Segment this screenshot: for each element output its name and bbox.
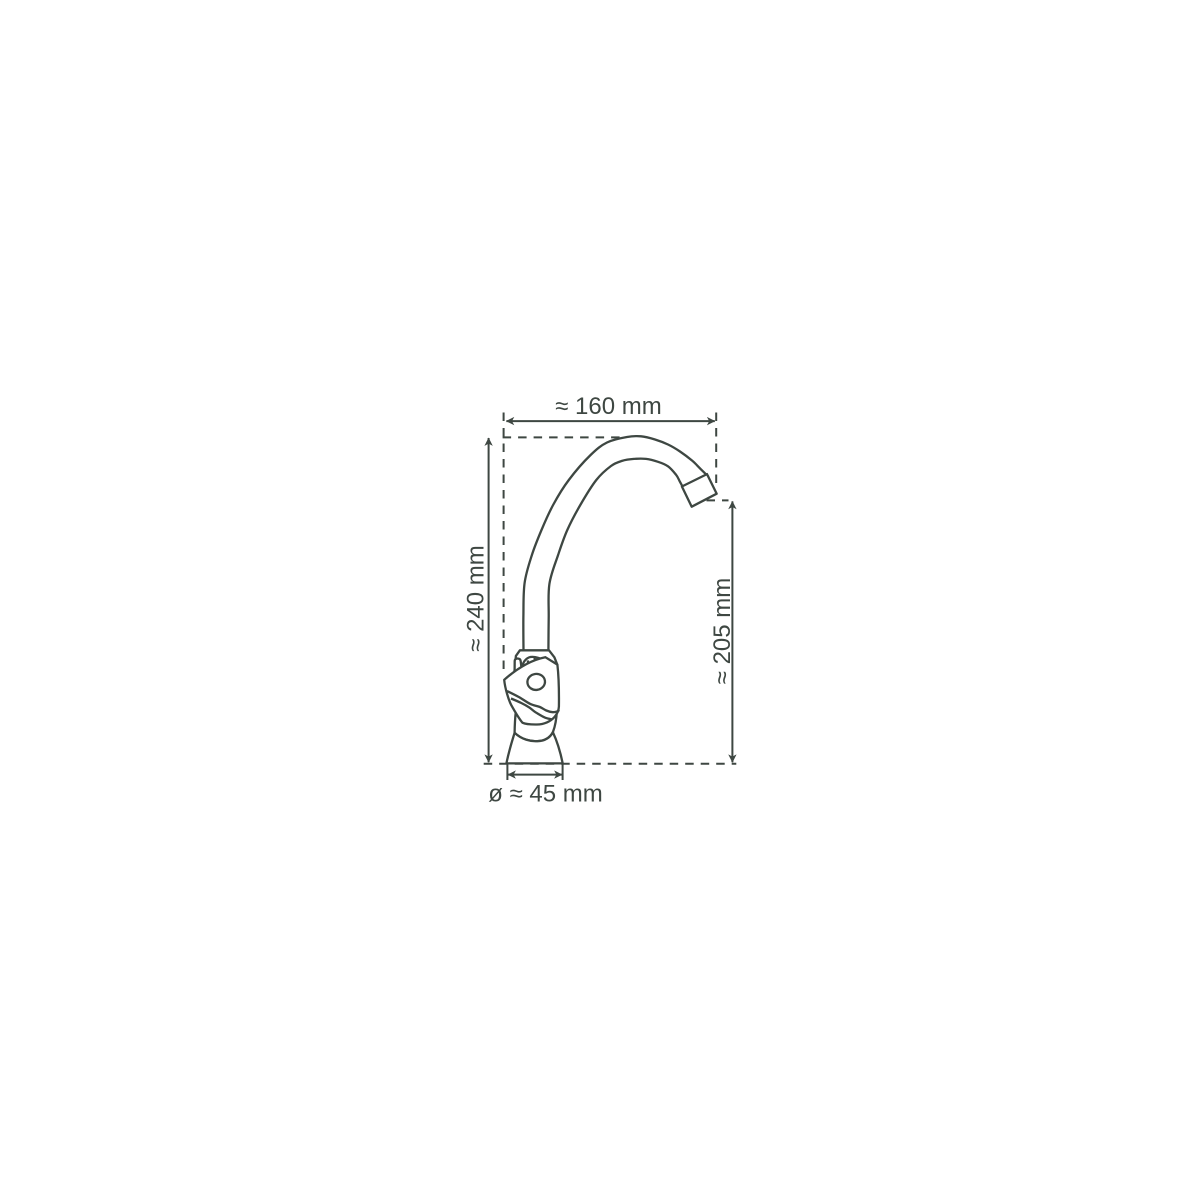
svg-text:≈ 160 mm: ≈ 160 mm: [555, 393, 662, 420]
svg-text:ø ≈ 45 mm: ø ≈ 45 mm: [488, 781, 603, 808]
svg-text:≈ 240 mm: ≈ 240 mm: [463, 545, 490, 652]
svg-text:≈ 205 mm: ≈ 205 mm: [709, 578, 736, 685]
